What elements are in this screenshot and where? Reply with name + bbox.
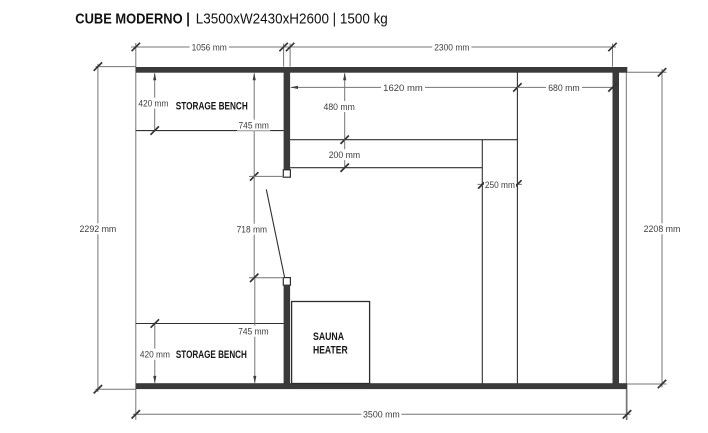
svg-text:2300 mm: 2300 mm xyxy=(434,42,469,52)
svg-text:718 mm: 718 mm xyxy=(237,225,268,235)
svg-text:1620 mm: 1620 mm xyxy=(383,83,423,93)
svg-text:680 mm: 680 mm xyxy=(548,83,580,93)
svg-text:SAUNA: SAUNA xyxy=(313,331,344,343)
svg-text:420 mm: 420 mm xyxy=(140,350,170,360)
svg-text:STORAGE BENCH: STORAGE BENCH xyxy=(176,101,248,113)
svg-text:250 mm: 250 mm xyxy=(485,180,515,190)
svg-text:CUBE MODERNO |: CUBE MODERNO | xyxy=(75,12,190,28)
svg-text:HEATER: HEATER xyxy=(313,344,348,356)
svg-text:745 mm: 745 mm xyxy=(238,327,269,337)
svg-text:3500 mm: 3500 mm xyxy=(363,410,400,420)
svg-text:STORAGE BENCH: STORAGE BENCH xyxy=(176,349,247,361)
svg-text:420 mm: 420 mm xyxy=(138,98,168,108)
svg-text:745 mm: 745 mm xyxy=(239,121,270,131)
svg-text:2208 mm: 2208 mm xyxy=(644,224,681,234)
svg-text:480 mm: 480 mm xyxy=(324,102,356,112)
svg-text:200 mm: 200 mm xyxy=(329,150,361,160)
svg-text:2292 mm: 2292 mm xyxy=(80,224,117,234)
svg-text:1056 mm: 1056 mm xyxy=(192,42,227,52)
svg-text:L3500xW2430xH2600 | 1500 kg: L3500xW2430xH2600 | 1500 kg xyxy=(196,12,388,28)
